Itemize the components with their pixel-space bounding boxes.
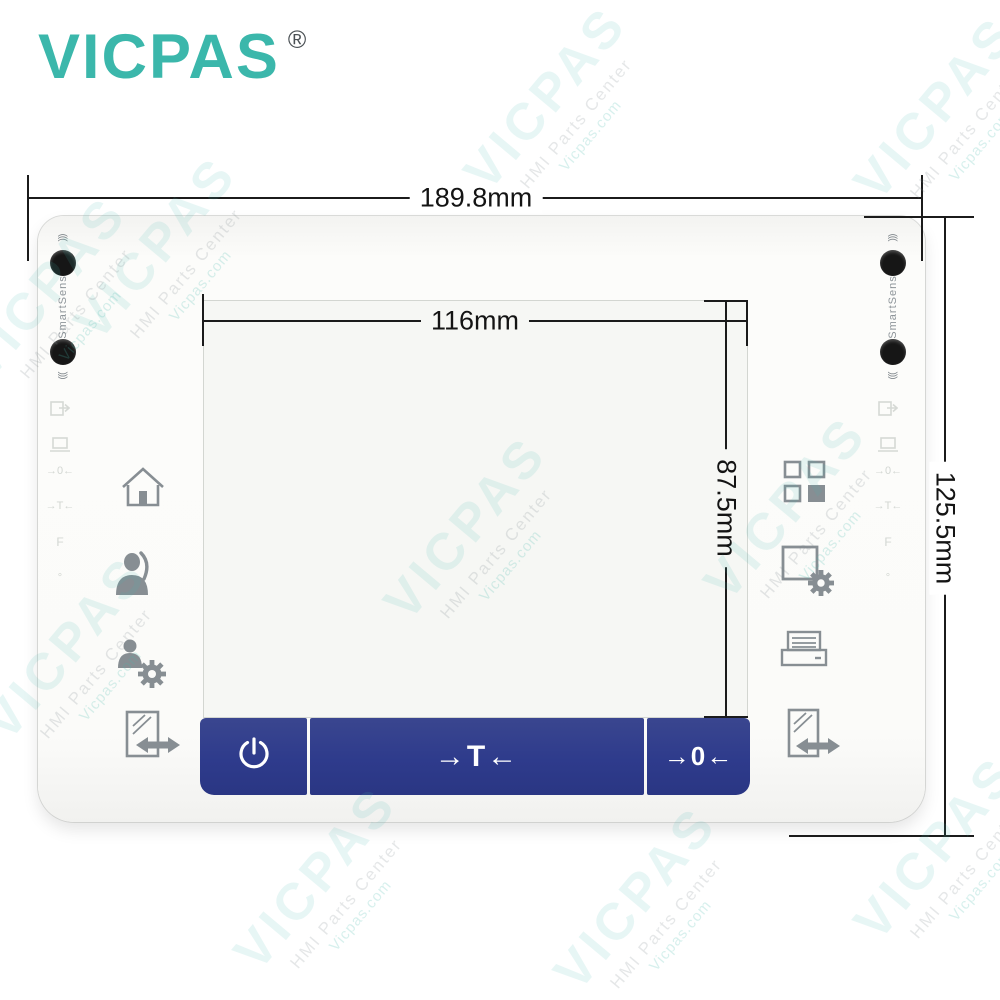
display-settings-icon: [781, 545, 835, 597]
zero-button-label: →0←: [664, 741, 733, 772]
user-icon: [113, 551, 157, 597]
display-window: [203, 300, 748, 718]
embossed-zero-mark: →0←: [874, 465, 902, 477]
watermark-tile: VICPASHMI Parts CenterVicpas.com: [542, 795, 758, 1000]
vicpas-logo-text: VICPAS: [38, 22, 280, 92]
embossed-degree-mark: °: [886, 572, 890, 584]
smartsens-sensor-dot: [880, 250, 906, 276]
screen-width-label: 116mm: [421, 305, 529, 336]
overall-height-label: 125.5mm: [929, 462, 960, 595]
sensor-wave-icon: (((: [58, 373, 69, 380]
extension-line: [746, 301, 748, 346]
smartsens-sensor-dot: [50, 339, 76, 365]
sensor-wave-icon: (((: [888, 373, 899, 380]
extension-line: [921, 175, 923, 261]
home-icon: [119, 464, 167, 510]
tare-button: →T←: [310, 718, 644, 795]
app-grid-icon: [783, 460, 827, 504]
document-transfer-icon: [124, 710, 188, 768]
power-icon: [237, 736, 271, 777]
export-icon: [50, 400, 70, 422]
smartsens-label-left: SmartSens: [57, 275, 69, 338]
power-button: [200, 718, 307, 795]
sensor-wave-icon: ))): [888, 235, 899, 242]
zero-button: →0←: [647, 718, 750, 795]
embossed-tare-mark: →T←: [874, 500, 903, 512]
embossed-f-mark: F: [56, 535, 63, 549]
vicpas-logo: VICPAS®: [38, 26, 300, 89]
membrane-button-bar: →T← →0←: [200, 718, 750, 795]
device-icon: [49, 437, 71, 458]
screen-height-label: 87.5mm: [710, 449, 741, 567]
smartsens-sensor-dot: [50, 250, 76, 276]
device-icon: [877, 437, 899, 458]
extension-line: [789, 835, 974, 837]
tare-button-label: →T←: [435, 740, 519, 774]
extension-line: [704, 716, 748, 718]
overall-width-label: 189.8mm: [410, 182, 543, 213]
export-icon: [878, 400, 898, 422]
extension-line: [864, 216, 974, 218]
embossed-degree-mark: °: [58, 572, 62, 584]
sensor-wave-icon: ))): [58, 235, 69, 242]
product-image: VICPAS® ))) SmartSens ((( ))) SmartSens …: [0, 0, 1000, 1000]
embossed-f-mark: F: [884, 535, 891, 549]
smartsens-label-right: SmartSens: [887, 275, 899, 338]
user-settings-icon: [116, 636, 170, 690]
smartsens-sensor-dot: [880, 339, 906, 365]
document-transfer-icon: [786, 708, 848, 766]
embossed-tare-mark: →T←: [46, 500, 75, 512]
registered-trademark-icon: ®: [288, 26, 308, 54]
extension-line: [27, 175, 29, 261]
printer-icon: [779, 630, 831, 680]
embossed-zero-mark: →0←: [46, 465, 74, 477]
